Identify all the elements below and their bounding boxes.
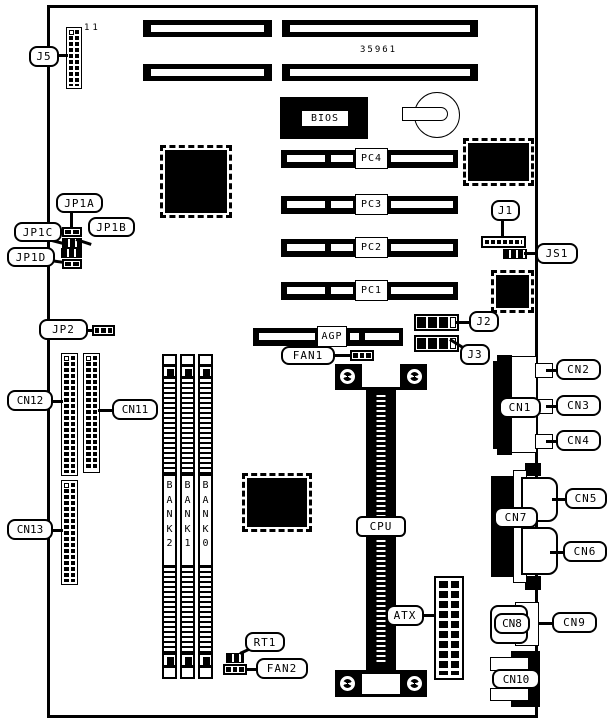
cn7-tab xyxy=(525,576,541,590)
jp2-callout: JP2 xyxy=(39,319,88,340)
agp-slot: AGP xyxy=(253,328,403,346)
slot-key xyxy=(151,25,264,32)
jp1a-jumper xyxy=(62,227,82,237)
slot-key xyxy=(287,201,325,208)
slot-key xyxy=(365,333,399,340)
slot-key xyxy=(287,287,325,294)
atx-connector xyxy=(434,576,464,680)
cn9-callout: CN9 xyxy=(552,612,597,633)
rt1-callout: RT1 xyxy=(245,632,285,652)
fan1-callout: FAN1 xyxy=(281,346,335,365)
dimm-slot-contacts xyxy=(198,566,213,654)
pci-slot-label: PC4 xyxy=(355,148,388,169)
cn8-callout: CN8 xyxy=(494,613,530,634)
board-part-number: 35961 xyxy=(360,45,397,55)
jp1b-callout: JP1B xyxy=(88,217,135,237)
j5-callout: J5 xyxy=(29,46,59,67)
dimm-latch xyxy=(180,653,195,667)
cn6-callout: CN6 xyxy=(563,541,607,562)
slot-key xyxy=(331,201,353,208)
fan2-callout: FAN2 xyxy=(256,658,308,679)
pci-slot-label: PC2 xyxy=(355,237,388,258)
cn2-callout: CN2 xyxy=(556,359,601,380)
j3-jumper xyxy=(414,335,459,352)
callout-tail xyxy=(70,212,73,227)
slot-key xyxy=(391,155,453,162)
pci-slot-pc4: PC4 xyxy=(281,150,458,168)
pci-slot-label: PC1 xyxy=(355,280,388,301)
jp1d-jumper xyxy=(62,259,82,269)
pin1-marker xyxy=(69,30,74,35)
dimm-latch xyxy=(180,666,195,679)
slot-key xyxy=(331,244,353,251)
slot-key xyxy=(331,155,353,162)
screw-hole xyxy=(340,369,355,384)
screw-hole xyxy=(340,676,355,691)
isa-slot xyxy=(282,20,478,37)
j2-jumper xyxy=(414,314,459,331)
dimm-slot-contacts xyxy=(162,566,177,654)
slot-key xyxy=(391,244,453,251)
dimm-slot-contacts xyxy=(180,377,195,475)
slot-key xyxy=(350,333,359,340)
dimm-latch xyxy=(198,653,213,667)
slot-key xyxy=(391,287,453,294)
dimm-slot-contacts xyxy=(162,377,177,475)
bank1-label: BANK1 xyxy=(180,474,195,567)
dimm-latch xyxy=(162,653,177,667)
slot-key xyxy=(290,25,470,32)
pin1-marker xyxy=(64,356,69,361)
cn12-header xyxy=(61,353,78,476)
cpu-slot-notch xyxy=(360,364,402,389)
dimm-latch xyxy=(162,666,177,679)
dimm-latch xyxy=(198,666,213,679)
cn11-header xyxy=(83,353,100,473)
cn13-header xyxy=(61,480,78,585)
j1-callout: J1 xyxy=(491,200,520,221)
j1-header xyxy=(481,236,526,248)
pin1-marker xyxy=(64,483,69,488)
cn7-tab xyxy=(525,463,541,476)
fan1-header xyxy=(350,350,374,361)
j3-callout: J3 xyxy=(460,344,490,365)
cn3-callout: CN3 xyxy=(556,395,601,416)
cn5-callout: CN5 xyxy=(565,488,607,509)
isa-slot xyxy=(143,64,272,81)
screw-hole xyxy=(407,676,422,691)
cn7-callout: CN7 xyxy=(494,507,538,528)
pci-slot-pc2: PC2 xyxy=(281,239,458,257)
pci-slot-pc1: PC1 xyxy=(281,282,458,300)
chipset-ic xyxy=(160,145,232,218)
pin1-marker xyxy=(86,356,91,361)
regulator-ic xyxy=(242,473,312,532)
cn10-port xyxy=(490,688,529,701)
slot-key xyxy=(290,69,470,76)
j5-pin-count: 11 xyxy=(84,23,101,33)
cpu-label: CPU xyxy=(356,516,406,537)
pci-slot-label: PC3 xyxy=(355,194,388,215)
cn10-callout: CN10 xyxy=(492,669,540,689)
jp1d-callout: JP1D xyxy=(7,247,55,267)
fan2-header xyxy=(223,664,247,675)
small-ic xyxy=(491,270,534,313)
callout-tail xyxy=(334,354,352,357)
cn13-callout: CN13 xyxy=(7,519,53,540)
cn1-callout: CN1 xyxy=(499,397,541,418)
io-ic xyxy=(463,138,534,186)
jp1c-callout: JP1C xyxy=(14,222,62,242)
bank2-label: BANK2 xyxy=(162,474,177,567)
cpu-slot-notch xyxy=(360,674,402,696)
screw-hole xyxy=(407,369,422,384)
cn1-tab xyxy=(497,445,512,455)
slot-key xyxy=(259,333,315,340)
bios-label: BIOS xyxy=(301,110,349,127)
motherboard-diagram: 35961 BIOS PC4 PC3 PC2 PC1 AGP xyxy=(0,0,611,721)
slot-key xyxy=(391,201,453,208)
isa-slot xyxy=(143,20,272,37)
jp2-jumper xyxy=(92,325,115,336)
j2-callout: J2 xyxy=(469,311,499,332)
slot-key xyxy=(331,287,353,294)
bank0-label: BANK0 xyxy=(198,474,213,567)
jp1a-callout: JP1A xyxy=(56,193,103,213)
slot-key xyxy=(151,69,264,76)
callout-tail xyxy=(501,220,504,237)
atx-callout: ATX xyxy=(386,605,424,626)
cn12-callout: CN12 xyxy=(7,390,53,411)
js1-callout: JS1 xyxy=(536,243,578,264)
battery-clip xyxy=(402,107,448,121)
cn11-callout: CN11 xyxy=(112,399,158,420)
jp1c-jumper xyxy=(61,248,82,258)
dimm-slot-contacts xyxy=(198,377,213,475)
j5-header xyxy=(66,27,82,89)
cn4-callout: CN4 xyxy=(556,430,601,451)
agp-slot-label: AGP xyxy=(317,326,347,347)
pci-slot-pc3: PC3 xyxy=(281,196,458,214)
isa-slot xyxy=(282,64,478,81)
dimm-slot-contacts xyxy=(180,566,195,654)
slot-key xyxy=(287,155,325,162)
slot-key xyxy=(287,244,325,251)
